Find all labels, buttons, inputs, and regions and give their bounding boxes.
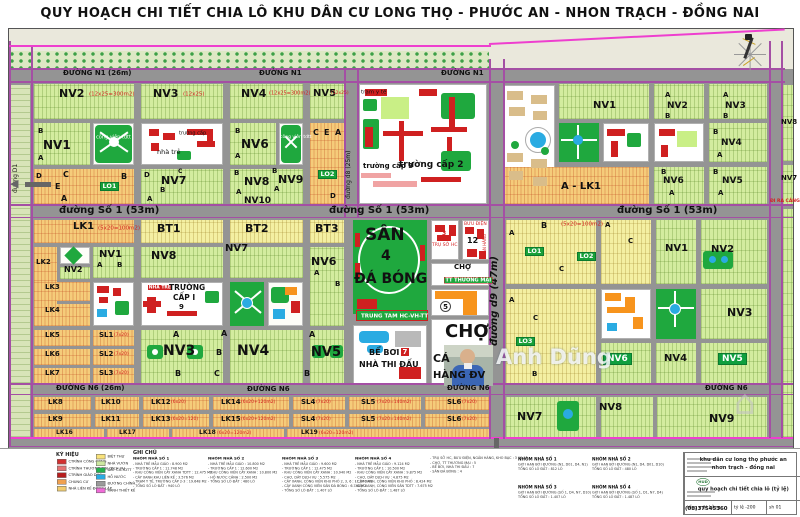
map-label: NV4: [237, 344, 269, 358]
watermark-logo: ⌂: [734, 386, 756, 420]
map-mark: [464, 363, 472, 369]
map-label: NV3: [727, 307, 752, 318]
map-title: QUY HOẠCH CHI TIẾT CHIA LÔ KHU DÂN CƯ LO…: [40, 6, 759, 21]
legend-biggroup-header: NHÓM NHÀ SỐ 2: [592, 457, 664, 462]
legend-item-label: ĐẤT CX-TDTT: [107, 468, 131, 472]
map-label: NV1: [665, 244, 688, 254]
map-label: trạm y tế: [361, 89, 386, 95]
map-label: (7x20=140m2): [377, 400, 411, 405]
block-lk6: [34, 349, 90, 365]
map-label: công viên tdtt: [280, 135, 311, 140]
map-mark: [781, 41, 783, 438]
map-label: (7x20): [114, 352, 129, 357]
map-mark: [509, 171, 523, 180]
map-mark: [573, 135, 583, 145]
title-block-cell: sh 01: [767, 501, 800, 514]
map-label: A - LK1: [561, 182, 601, 192]
legend-biggroup-total: TỔNG SỐ LÔ ĐẤT : 480 LÔ: [592, 467, 664, 471]
map-label: (7x20): [462, 417, 477, 422]
map-mark: [507, 153, 523, 162]
legend-biggroup-total: TỔNG SỐ LÔ ĐẤT : 812 LÔ: [518, 467, 588, 471]
map-label: LK6: [45, 351, 60, 358]
legend-item: BIỆT THỰ: [96, 453, 135, 460]
map-mark: [207, 129, 213, 147]
legend-color-chip: [96, 461, 105, 466]
map-label: ĐI RA CẢNG: [770, 199, 800, 204]
map-label: LK17: [119, 430, 136, 436]
map-label: CẤP I: [173, 294, 195, 302]
map-label: đường d9 (47m): [490, 256, 500, 346]
map-label: LK9: [48, 416, 63, 423]
legend-color-chip: [57, 466, 66, 471]
map: ĐƯỜNG N1 (26m)ĐƯỜNG N1ĐƯỜNG N1đường Số 1…: [8, 28, 794, 449]
legend-group-3: NHÓM NHÀ SỐ 3- NHÀ TRẺ MẪU GIÁO : 9.600 …: [282, 456, 355, 493]
map-label: (7x20): [462, 400, 477, 405]
map-mark: [607, 129, 625, 136]
map-label: NV8: [781, 119, 797, 126]
legend-color-chip: [96, 474, 105, 479]
map-label: B: [723, 113, 728, 120]
map-label: SL4: [301, 416, 315, 423]
legend-item-label: HỒ NƯỚC: [107, 475, 125, 479]
map-mark: [357, 68, 359, 218]
legend-color-chip: [96, 488, 105, 493]
map-label: đường Số 1 (53m): [329, 206, 429, 216]
map-label: C: [628, 238, 633, 245]
plan-screenshot: QUY HOẠCH CHI TIẾT CHIA LÔ KHU DÂN CƯ LO…: [0, 0, 800, 517]
title-block-company: HUD (08)37545360: [684, 453, 685, 514]
legend-item: ĐẤT CX-TDTT: [96, 467, 135, 474]
chip-nv5: NV5: [718, 353, 747, 365]
map-label: E: [324, 129, 329, 137]
map-label: NV8: [151, 250, 176, 261]
map-label: NV10: [244, 197, 271, 206]
map-label: ĐƯỜNG N1: [441, 70, 484, 77]
map-mark: [431, 127, 467, 132]
map-label: NHÀ THI ĐẤU: [359, 361, 419, 369]
legend-biggroup-header: NHÓM NHÀ SỐ 4: [592, 485, 663, 490]
map-label: TRỤ SỞ HC: [432, 243, 458, 248]
legend-biggroup-total: TỔNG SỐ LÔ ĐẤT : 1.487 LÔ: [592, 495, 663, 499]
map-label: BỂ BƠI: [369, 349, 399, 357]
map-label: ĐƯỜNG N1 (26m): [63, 70, 131, 77]
map-label: SL6: [447, 399, 461, 406]
map-mark: [9, 81, 785, 83]
map-label: (7x20): [316, 400, 331, 405]
map-label: A: [314, 270, 319, 277]
map-label: (12x25=300m2): [269, 91, 310, 96]
map-label: A: [665, 92, 670, 99]
map-mark: [357, 299, 377, 309]
map-mark: [291, 301, 300, 313]
map-label: B: [117, 262, 122, 269]
map-mark: [163, 133, 175, 140]
map-mark: [463, 297, 477, 315]
map-label: đường d8 (25m): [346, 151, 352, 200]
map-label: NV7: [161, 175, 186, 186]
map-mark: [421, 177, 461, 182]
map-label: (5x20=100m2): [561, 221, 603, 227]
map-label: SL6: [447, 416, 461, 423]
map-label: SL3: [99, 370, 113, 377]
map-label: B: [713, 129, 718, 136]
map-label: B: [713, 169, 718, 176]
map-mark: [449, 97, 455, 131]
title-block-project: khu dân cư long thọ phước an nhơn trạch …: [685, 453, 800, 477]
map-label: NV4: [664, 354, 687, 364]
legend-biggroup-4: NHÓM NHÀ SỐ 4GIỚI HẠN BỞI ĐƯỜNG (SỐ 1, D…: [592, 485, 663, 499]
map-label: B: [335, 281, 340, 288]
map-mark: [25, 182, 51, 187]
map-label: NV7: [781, 175, 797, 182]
legend-color-chip: [57, 479, 66, 484]
map-mark: [531, 159, 547, 168]
map-label: NV7: [517, 411, 542, 422]
map-label: LK1: [73, 222, 94, 232]
map-mark: [441, 93, 475, 119]
map-label: NV9: [278, 174, 303, 185]
map-label: nhà trẻ: [157, 149, 181, 156]
map-label: B: [160, 187, 165, 194]
map-mark: [541, 147, 549, 155]
map-label: trường cấp 2: [399, 161, 464, 170]
legend-color-chip: [57, 472, 66, 477]
map-label: (7x20): [114, 333, 129, 338]
map-mark: [507, 91, 523, 100]
block-lk7: [34, 368, 90, 384]
title-block-cells: tổng mặt bằngtỷ lệ -200sh 01: [685, 501, 800, 514]
legend-item: HỒ NƯỚC: [96, 473, 135, 480]
map-label: A: [38, 155, 43, 162]
map-label: NV8: [599, 403, 622, 413]
legend-biggroup-header: NHÓM NHÀ SỐ 1: [518, 457, 588, 462]
map-mark: [745, 34, 752, 40]
map-label: B: [661, 169, 666, 176]
map-label: A: [61, 195, 67, 203]
legend-biggroup-3: NHÓM NHÀ SỐ 3GIỚI HẠN BỞI ĐƯỜNG (SỐ 1, D…: [518, 485, 591, 499]
map-label: A: [605, 222, 610, 229]
legend-item-label: RANH THIẾT KẾ: [107, 488, 135, 492]
map-label: NV8: [244, 176, 269, 187]
exit-arrow-west: ◀: [10, 178, 18, 189]
map-mark: [607, 323, 617, 331]
legend-group-line: - TỔNG SỐ LÔ ĐẤT : 1.407 LÔ: [282, 488, 355, 492]
map-label: A: [274, 186, 279, 193]
legend-color-chip: [57, 459, 66, 464]
map-label: LK3: [45, 284, 60, 291]
map-label: C: [214, 370, 220, 378]
map-label: A: [509, 230, 514, 237]
map-label: CHỢ: [445, 323, 489, 341]
legend-color-chip: [96, 467, 105, 472]
map-label: CHỢ: [454, 264, 471, 271]
map-label: LK13: [151, 416, 171, 423]
title-block-cell-label: sh 01: [769, 505, 781, 510]
map-mark: [355, 233, 360, 247]
legend-group-header: NHÓM NHÀ SỐ 3: [282, 456, 355, 461]
map-mark: [9, 394, 793, 396]
map-label: C: [533, 315, 538, 322]
map-label: SÂN: [365, 227, 405, 244]
map-label: C: [63, 171, 69, 179]
map-label: TRƯỜNG: [169, 284, 205, 292]
map-label: B: [38, 128, 43, 135]
map-label: (7x20): [316, 417, 331, 422]
legend-biggroup-1: NHÓM NHÀ SỐ 1GIỚI HẠN BỞI ĐƯỜNG (N1, D01…: [518, 457, 588, 471]
map-label: 3: [442, 231, 446, 237]
map-mark: [9, 437, 793, 439]
map-mark: [152, 349, 158, 355]
map-mark: [605, 293, 621, 301]
map-label: NV2: [711, 245, 734, 255]
map-label: NV6: [663, 177, 684, 186]
map-label: A: [717, 152, 722, 159]
map-label: ĐƯỜNG N6 (26m): [56, 385, 124, 392]
map-label: A: [173, 331, 179, 339]
map-label: NV2: [59, 88, 84, 99]
map-label: B: [532, 371, 537, 378]
legend-group-4: NHÓM NHÀ SỐ 4- NHÀ TRẺ MẪU GIÁO : 9.124 …: [355, 456, 428, 493]
map-mark: [633, 317, 643, 329]
map-label: BT2: [245, 223, 269, 234]
map-label: 12: [467, 237, 478, 245]
map-label: B: [175, 370, 181, 378]
chip-lo1b: LO1: [525, 247, 544, 256]
map-label: (5x20=100m2): [98, 225, 140, 231]
map-label: (6x20=120): [171, 417, 198, 422]
map-label: NV3: [153, 88, 178, 99]
map-label: LK10: [101, 399, 121, 406]
map-label: D: [36, 173, 42, 180]
map-label: A: [147, 196, 152, 203]
map-label: B: [272, 168, 277, 175]
map-mark: [115, 301, 129, 315]
map-label: ĐƯỜNG N6: [447, 385, 490, 392]
map-label: NV4: [721, 139, 742, 148]
map-mark: [363, 99, 377, 111]
map-mark: [365, 127, 373, 147]
map-label: A: [509, 297, 514, 304]
legend-biggroup-header: NHÓM NHÀ SỐ 3: [518, 485, 591, 490]
map-label: (6x20): [171, 400, 186, 405]
legend-item-label: ĐƯỜNG CHÍNH: [107, 481, 135, 485]
map-label: ĐƯỜNG N6: [247, 386, 290, 393]
map-label: NV7: [225, 244, 248, 254]
legend-facility-line: - SÂN ĐÁ BÓNG : 4: [430, 469, 503, 473]
legend-biggroup-2: NHÓM NHÀ SỐ 2GIỚI HẠN BỞI ĐƯỜNG (N1, D4,…: [592, 457, 664, 471]
legend-group-header: NHÓM NHÀ SỐ 1: [133, 456, 206, 461]
map-mark: [533, 177, 547, 186]
map-label: (12x25=300m2): [89, 91, 135, 97]
map-label: A: [723, 92, 728, 99]
map-mark: [627, 133, 641, 147]
map-label: CÁ: [433, 353, 450, 364]
map-label: ĐÁ BÓNG: [354, 272, 427, 286]
map-label: NV1: [99, 250, 122, 260]
map-label: BT1: [157, 223, 181, 234]
map-label: A: [718, 190, 723, 197]
map-mark: [359, 331, 389, 343]
legend-biggroup-total: TỔNG SỐ LÔ ĐẤT : 1.407 LÔ: [518, 495, 591, 499]
block-y2: [601, 220, 651, 284]
map-label: 5: [440, 301, 451, 312]
legend: KÝ HIỆU CTRÌNH CÔNG CỘNGCTRÌNH THƯƠNG MẠ…: [0, 448, 800, 517]
map-label: NGÂN HÀNG: [483, 234, 487, 259]
map-mark: [97, 286, 109, 293]
map-label: A: [236, 189, 241, 196]
chip-lo2: LO2: [318, 170, 337, 179]
map-label: NV5: [722, 177, 743, 186]
map-label: NV2: [64, 266, 82, 274]
legend-group-line: - TỔNG SỐ LÔ ĐẤT : 480 LÔ: [208, 479, 281, 483]
map-mark: [659, 129, 675, 136]
map-label: B: [216, 349, 222, 357]
map-label: LK14: [221, 399, 241, 406]
legend-item: ĐƯỜNG CHÍNH: [96, 480, 135, 487]
map-label: NV1: [593, 101, 616, 111]
map-label: SL2: [99, 351, 113, 358]
legend-group-line: - TỔNG SỐ LÔ ĐẤT : 940 LÔ: [133, 484, 206, 488]
block-bt1: [141, 220, 223, 243]
map-label: LK19: [301, 430, 318, 436]
map-label: A: [335, 129, 341, 137]
map-label: (7x20): [114, 371, 129, 376]
map-label: đường Số 1 (53m): [59, 206, 159, 216]
legend-color-chip: [57, 486, 66, 491]
map-mark: [167, 311, 197, 316]
map-mark: [530, 132, 546, 148]
legend-group-line: - TỔNG SỐ LÔ ĐẤT : 1.487 LÔ: [355, 488, 428, 492]
map-label: NV6: [241, 138, 269, 150]
map-mark: [113, 288, 121, 296]
map-label: C: [559, 266, 564, 273]
map-label: SL5: [361, 399, 375, 406]
block-lk3: [34, 282, 90, 301]
map-mark: [607, 307, 627, 313]
map-label: công viên tdtt: [96, 135, 131, 140]
map-mark: [661, 145, 668, 157]
map-mark: [769, 41, 771, 438]
map-label: (6x20+120m2): [241, 400, 275, 405]
map-label: TT THƯƠNG MẠI: [444, 277, 493, 284]
map-mark: [563, 409, 573, 419]
map-mark: [9, 383, 793, 385]
map-mark: [611, 141, 618, 157]
map-mark: [9, 45, 491, 47]
legend-column-2: BIỆT THỰNHÀ VƯỜNĐẤT CX-TDTTHỒ NƯỚCĐƯỜNG …: [96, 453, 135, 494]
map-label: LK11: [101, 416, 121, 423]
map-label: B: [541, 222, 547, 230]
block-lk5: [34, 330, 90, 346]
map-label: A: [221, 330, 227, 338]
map-mark: [669, 303, 681, 315]
map-label: B: [665, 113, 670, 120]
map-label: trường cấp: [179, 131, 206, 136]
map-mark: [381, 97, 409, 119]
map-label: LK2: [36, 259, 51, 266]
map-mark: [511, 141, 519, 149]
map-label: NV6: [311, 256, 336, 267]
map-label: (6x20=120m2): [217, 431, 251, 436]
map-mark: [467, 249, 477, 257]
map-label: LK18: [199, 430, 216, 436]
watermark-agent-name: Anh Dũng: [496, 347, 612, 368]
map-label: NV9: [709, 413, 734, 424]
project-name-line1: khu dân cư long thọ phước an: [697, 456, 790, 462]
project-name-line2: nhơn trạch - đồng nai: [697, 464, 790, 470]
legend-item: RANH THIẾT KẾ: [96, 487, 135, 494]
legend-color-chip: [96, 481, 105, 486]
map-mark: [31, 45, 33, 437]
map-mark: [9, 41, 11, 447]
east-strip: [783, 209, 793, 437]
map-label: A: [309, 331, 315, 339]
map-label: ĐƯỜNG N1: [259, 70, 302, 77]
map-label: C: [313, 129, 319, 137]
map-mark: [9, 446, 793, 448]
map-label: D: [330, 193, 336, 200]
map-label: A: [97, 262, 102, 269]
map-label: LK12: [151, 399, 171, 406]
map-label: NV3: [725, 102, 746, 111]
map-mark: [143, 301, 161, 307]
legend-color-chip: [96, 454, 105, 459]
map-mark: [465, 227, 474, 234]
map-mark: [205, 291, 219, 303]
map-mark: [97, 309, 107, 317]
map-label: 4: [381, 249, 391, 263]
map-label: NV3: [163, 344, 195, 358]
title-block: HUD (08)37545360 khu dân cư long thọ phư…: [683, 452, 797, 515]
title-bar: QUY HOẠCH CHI TIẾT CHIA LÔ KHU DÂN CƯ LO…: [0, 0, 800, 26]
map-label: (12x25): [183, 91, 205, 97]
map-mark: [361, 173, 391, 178]
map-mark: [460, 349, 475, 364]
legend-item-label: BIỆT THỰ: [107, 454, 124, 458]
map-mark: [273, 309, 285, 319]
map-label: D: [144, 172, 150, 179]
map-mark: [709, 256, 716, 263]
block-lk4: [34, 304, 90, 326]
map-label: (12x25): [331, 91, 349, 96]
map-label: LK16: [56, 430, 73, 436]
legend-item-label: CHUNG CƯ: [68, 480, 88, 484]
map-mark: [9, 217, 793, 219]
map-label: NV2: [667, 102, 688, 111]
legend-group-header: NHÓM NHÀ SỐ 2: [208, 456, 281, 461]
map-mark: [241, 297, 253, 309]
map-mark: [99, 297, 108, 303]
title-block-cell-label: tổng mặt bằng: [687, 505, 720, 510]
map-label: 7: [401, 348, 409, 356]
map-label: LK8: [48, 399, 63, 406]
map-label: (7x20=140m2): [377, 417, 411, 422]
map-label: E: [55, 183, 60, 191]
map-label: LK4: [45, 307, 60, 314]
map-label: SL4: [301, 399, 315, 406]
map-mark: [395, 331, 421, 347]
map-label: B: [121, 173, 127, 181]
map-label: TRUNG TAM HC-VH-TT: [361, 313, 428, 319]
map-label: B: [304, 370, 310, 378]
map-label: đường Số 1 (53m): [617, 206, 717, 216]
map-label: B: [234, 170, 239, 177]
map-mark: [149, 129, 159, 136]
hud-logo: HUD: [696, 478, 709, 486]
drawing-name: quy hoạch chi tiết chia lô (tỷ lệ): [698, 485, 789, 491]
map-mark: [677, 131, 697, 147]
map-label: NV5: [311, 346, 341, 359]
